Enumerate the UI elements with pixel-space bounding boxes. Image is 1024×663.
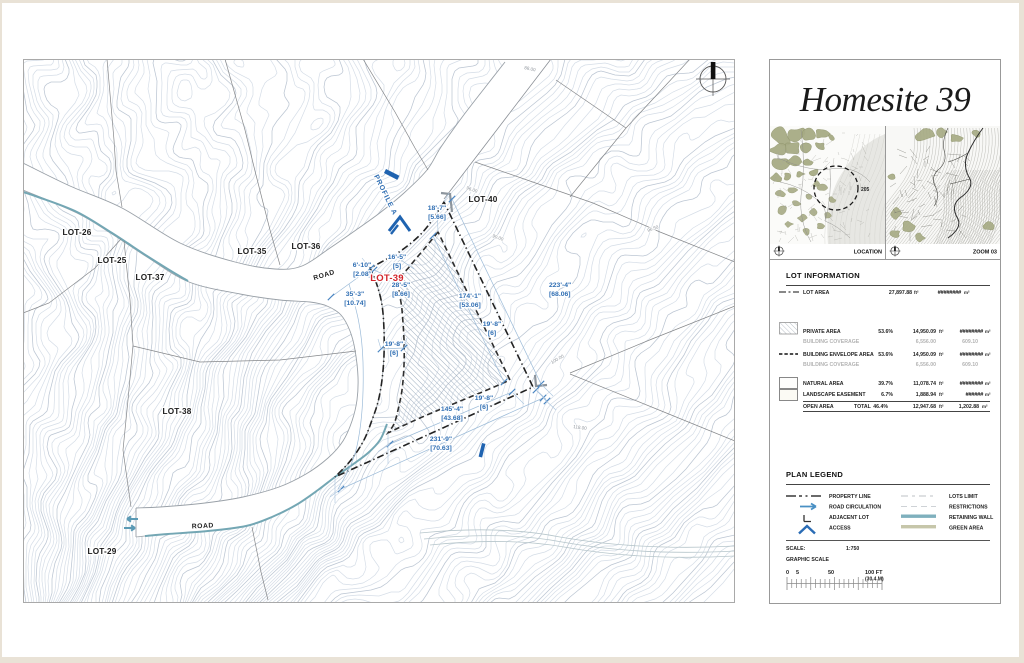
svg-text:GREEN AREA: GREEN AREA [949, 526, 984, 532]
svg-text:0: 0 [786, 570, 789, 576]
svg-text:LOT-40: LOT-40 [469, 195, 498, 204]
svg-text:LOT-39: LOT-39 [370, 273, 403, 284]
svg-text:[2.08]: [2.08] [353, 271, 371, 278]
svg-text:LOT-37: LOT-37 [136, 273, 165, 282]
svg-text:[8.66]: [8.66] [392, 291, 410, 298]
svg-text:19'-8": 19'-8" [483, 321, 501, 328]
svg-text:LOT-26: LOT-26 [63, 228, 92, 237]
svg-text:ROAD: ROAD [192, 522, 214, 530]
svg-text:50: 50 [828, 570, 834, 576]
svg-text:16'-5": 16'-5" [388, 254, 406, 261]
svg-text:LOTS LIMIT: LOTS LIMIT [949, 494, 979, 500]
svg-text:ROAD CIRCULATION: ROAD CIRCULATION [829, 505, 881, 511]
svg-text:[6]: [6] [488, 330, 496, 337]
svg-text:[70.63]: [70.63] [430, 445, 452, 452]
svg-text:5: 5 [796, 570, 799, 576]
svg-text:35'-3": 35'-3" [346, 291, 364, 298]
svg-text:LOT-29: LOT-29 [88, 547, 117, 556]
svg-text:ADJACENT LOT: ADJACENT LOT [829, 515, 870, 521]
svg-text:18'-7": 18'-7" [428, 205, 446, 212]
svg-text:223'-4": 223'-4" [549, 282, 571, 289]
svg-text:[5.66]: [5.66] [428, 214, 446, 221]
svg-text:LOT-38: LOT-38 [163, 407, 192, 416]
svg-text:[5]: [5] [393, 263, 401, 270]
svg-text:174'-1": 174'-1" [459, 293, 481, 300]
svg-text:6'-10": 6'-10" [353, 262, 371, 269]
svg-text:LOT-35: LOT-35 [238, 247, 267, 256]
svg-text:[43.68]: [43.68] [441, 415, 463, 422]
svg-text:LOCATION: LOCATION [854, 250, 882, 256]
svg-text:100 FT: 100 FT [865, 570, 883, 576]
svg-text:RETAINING WALL: RETAINING WALL [949, 515, 994, 521]
svg-text:145'-4": 145'-4" [441, 406, 463, 413]
svg-text:[6]: [6] [480, 404, 488, 411]
svg-text:[10.74]: [10.74] [344, 300, 366, 307]
svg-text:205: 205 [861, 187, 870, 193]
svg-text:19'-8": 19'-8" [385, 341, 403, 348]
svg-text:[53.06]: [53.06] [459, 302, 481, 309]
svg-text:[6]: [6] [390, 350, 398, 357]
svg-text:[68.06]: [68.06] [549, 291, 571, 298]
svg-text:19'-8": 19'-8" [475, 395, 493, 402]
svg-text:ACCESS: ACCESS [829, 526, 851, 532]
svg-text:LOT-36: LOT-36 [292, 242, 321, 251]
svg-text:PROPERTY LINE: PROPERTY LINE [829, 494, 871, 500]
svg-text:RESTRICTIONS: RESTRICTIONS [949, 505, 988, 511]
svg-text:ZOOM 03: ZOOM 03 [973, 250, 997, 256]
svg-text:LOT-25: LOT-25 [98, 256, 127, 265]
svg-text:231'-9": 231'-9" [430, 436, 452, 443]
